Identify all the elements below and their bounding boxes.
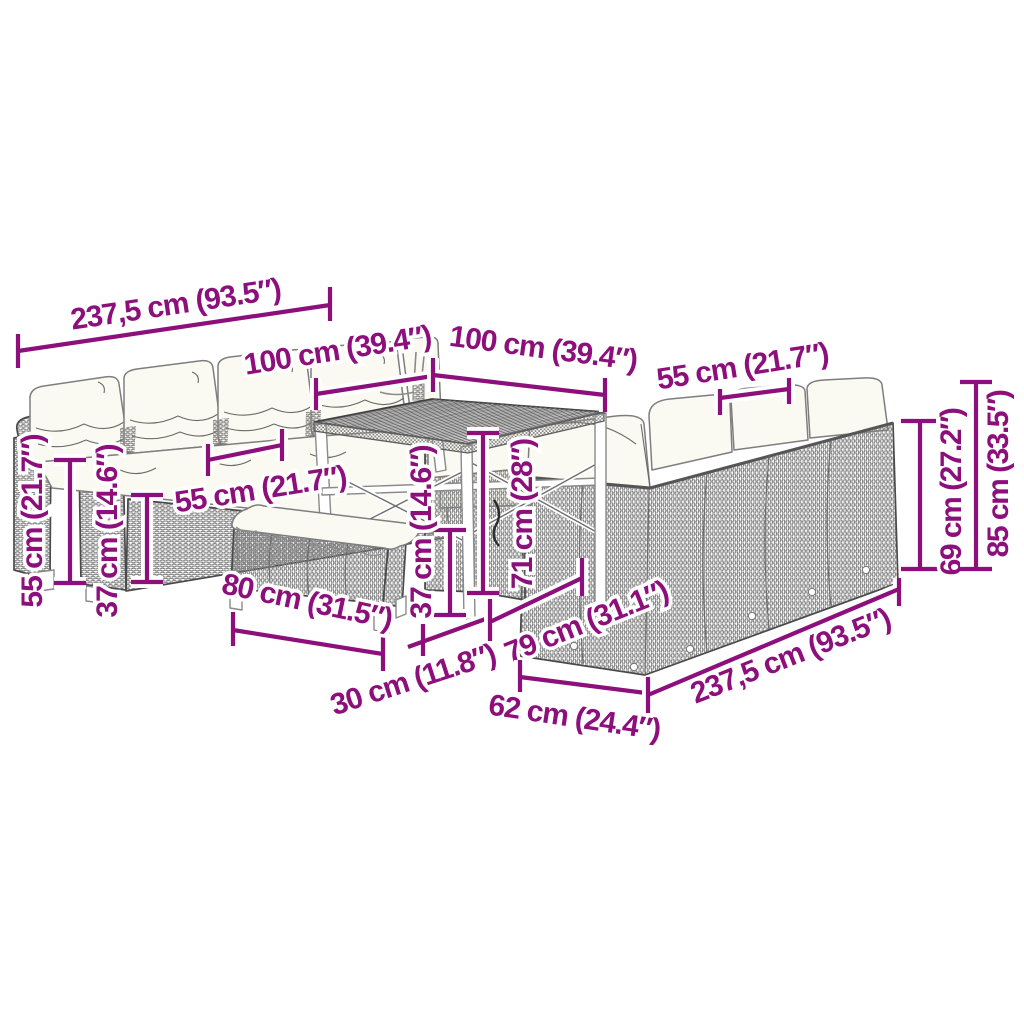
svg-text:71 cm (28″): 71 cm (28″) xyxy=(506,439,539,589)
svg-text:37 cm (14.6″): 37 cm (14.6″) xyxy=(91,444,124,617)
svg-text:37 cm (14.6″): 37 cm (14.6″) xyxy=(405,445,438,618)
svg-text:55 cm (21.7″): 55 cm (21.7″) xyxy=(16,434,49,607)
svg-text:85 cm (33.5″): 85 cm (33.5″) xyxy=(982,390,1015,557)
svg-text:69 cm (27.2″): 69 cm (27.2″) xyxy=(935,408,968,575)
